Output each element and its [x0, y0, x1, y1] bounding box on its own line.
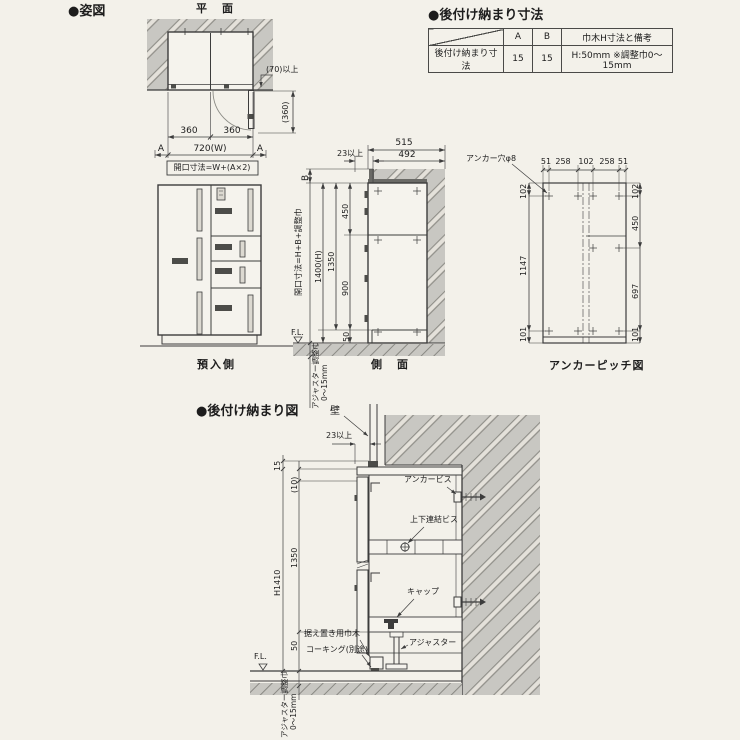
- anchor-left-dim-101: 101: [520, 327, 528, 342]
- plan-door-swing-dim: (360): [282, 101, 290, 123]
- detail-joint-screw-label: 上下連結ビス: [410, 516, 458, 525]
- anchor-diagram-caption: アンカーピッチ図: [549, 360, 645, 372]
- side-dim-50: 50: [343, 332, 351, 342]
- table-header-note: 巾木H寸法と備考: [562, 29, 673, 46]
- side-adjuster-range: 0〜15mm: [321, 365, 329, 401]
- plan-opening-formula: 開口寸法=W+(A×2): [174, 164, 251, 173]
- detail-dim-1350: 1350: [291, 548, 299, 568]
- side-dim-450: 450: [342, 204, 350, 219]
- side-view-caption: 側 面: [371, 359, 410, 371]
- detail-fl-label: F.L.: [254, 653, 267, 662]
- anchor-right-dim-102: 102: [632, 184, 640, 199]
- detail-dim-h1410: H1410: [274, 570, 282, 596]
- detail-baseboard-label: 据え置き用巾木: [304, 630, 360, 639]
- plan-dim-a-right: A: [257, 145, 263, 155]
- table-value-note: H:50mm ※調整巾0〜15mm: [562, 46, 673, 73]
- side-opening-formula: 開口寸法=H+B+調整巾: [295, 208, 303, 296]
- side-dim-1400h: 1400(H): [315, 250, 323, 283]
- detail-caulking-label: コーキング(別途): [306, 646, 368, 655]
- plan-wall-min-dim: (70)以上: [266, 66, 298, 75]
- plan-dim-360-left: 360: [180, 127, 197, 137]
- anchor-right-dim-450: 450: [632, 216, 640, 231]
- detail-dim-10: (10): [291, 477, 299, 493]
- plan-dim-a-left: A: [158, 145, 164, 155]
- detail-wall-label: 壁: [330, 406, 340, 417]
- side-adjuster-note: アジャスター調整巾: [312, 342, 320, 409]
- plan-view-caption: 平 面: [196, 3, 235, 15]
- anchor-left-dim-102: 102: [520, 184, 528, 199]
- anchor-top-dim-51b: 51: [618, 158, 628, 167]
- side-dim-515: 515: [395, 139, 412, 149]
- technical-drawing-page: ●姿図 平 面 ●後付け納まり寸法 A B 巾木H寸法と備考 後付け納まり寸法 …: [0, 0, 740, 740]
- front-view-caption: 預入側: [197, 359, 236, 371]
- anchor-top-dim-51a: 51: [541, 158, 551, 167]
- detail-dim-50: 50: [291, 641, 299, 651]
- side-dim-23min: 23以上: [337, 150, 363, 159]
- table-value-b: 15: [533, 46, 562, 73]
- table-header-b: B: [533, 29, 562, 46]
- detail-anchor-screw-label: アンカービス: [404, 476, 452, 485]
- plan-dim-360-right: 360: [223, 127, 240, 137]
- table-header-a: A: [504, 29, 533, 46]
- detail-title: ●後付け納まり図: [196, 405, 298, 419]
- front-view-linework: [140, 185, 308, 346]
- side-fl-label: F.L.: [291, 329, 304, 338]
- detail-dim-23min: 23以上: [326, 432, 352, 441]
- detail-adjuster-range: 0〜15mm: [290, 694, 298, 730]
- anchor-top-dim-102: 102: [578, 158, 593, 167]
- plan-dim-720w: 720(W): [193, 145, 226, 155]
- locker-number-plate: [215, 268, 232, 274]
- detail-dim-15: 15: [274, 461, 282, 471]
- locker-number-plate: [215, 208, 232, 214]
- anchor-right-dim-101: 101: [632, 327, 640, 342]
- detail-adjuster-note: アジャスター調整巾: [281, 671, 289, 738]
- side-dim-900: 900: [342, 281, 350, 296]
- locker-number-plate: [172, 258, 188, 264]
- anchor-hole-label: アンカー穴φ8: [466, 155, 516, 164]
- table-row-label: 後付け納まり寸法: [429, 46, 504, 73]
- table-corner-cell: [429, 29, 504, 46]
- anchor-left-dim-1147: 1147: [520, 256, 528, 276]
- anchor-right-dim-697: 697: [632, 284, 640, 299]
- side-dim-1350: 1350: [328, 252, 336, 272]
- locker-number-plate: [215, 305, 232, 311]
- table-title: ●後付け納まり寸法: [428, 9, 543, 23]
- anchor-top-dim-258a: 258: [555, 158, 570, 167]
- table-value-a: 15: [504, 46, 533, 73]
- side-dim-492: 492: [398, 151, 415, 161]
- detail-cap-label: キャップ: [407, 588, 439, 597]
- anchor-top-dim-258b: 258: [599, 158, 614, 167]
- anchor-pitch-linework: [512, 164, 640, 343]
- dimension-table: A B 巾木H寸法と備考 後付け納まり寸法 15 15 H:50mm ※調整巾0…: [428, 28, 673, 73]
- figure-title: ●姿図: [68, 5, 105, 19]
- detail-adjuster-label: アジャスター: [409, 639, 456, 648]
- locker-number-plate: [215, 244, 232, 250]
- side-dim-b: B: [302, 175, 311, 181]
